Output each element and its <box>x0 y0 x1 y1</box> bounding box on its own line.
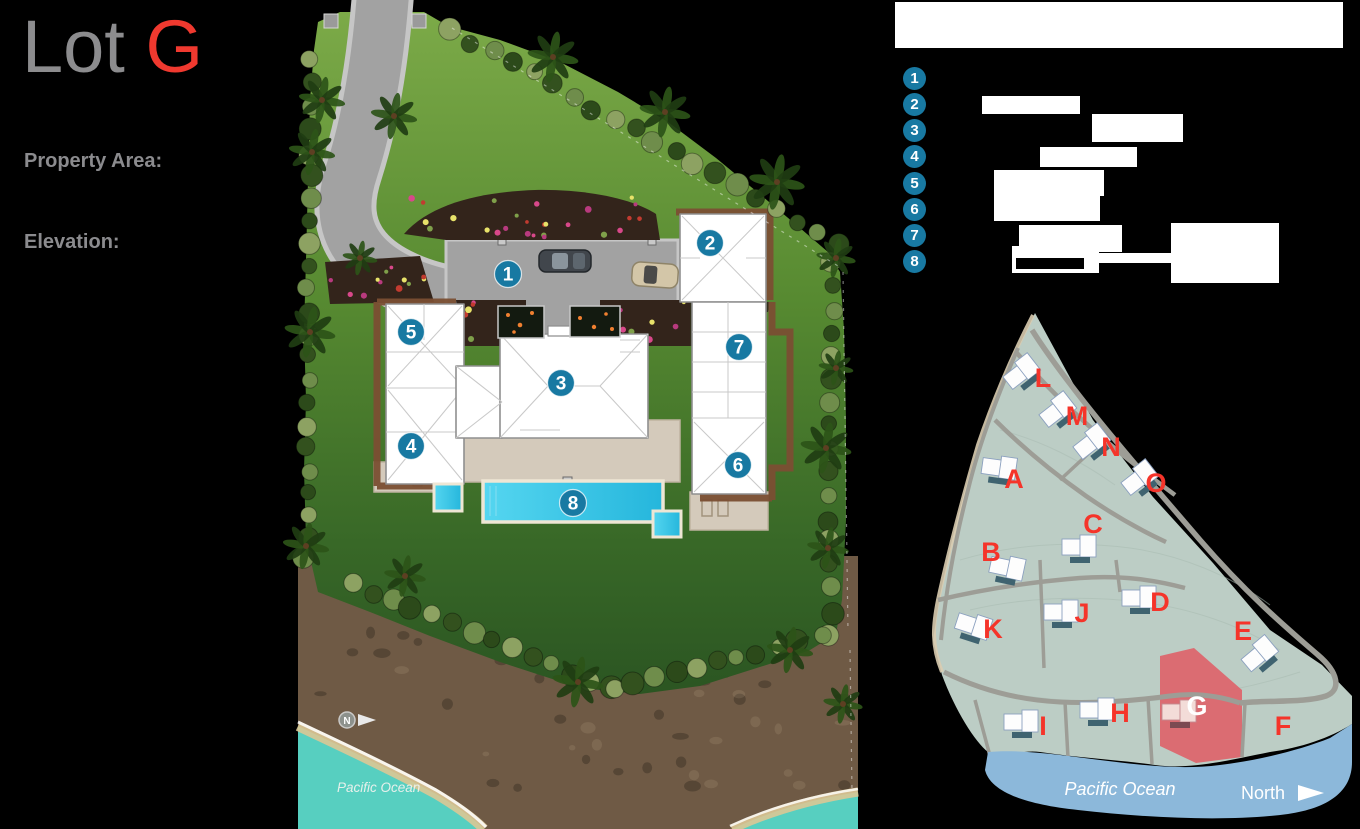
inset-lot-letter-I: I <box>1039 711 1047 741</box>
inset-lot-letter-C: C <box>1083 509 1103 539</box>
page-canvas: N Pacific Ocean 12345678 <box>0 0 1360 829</box>
site-marker-5: 5 <box>398 319 425 346</box>
site-marker-8: 8 <box>560 490 587 517</box>
legend-item-1: 1 <box>903 67 926 90</box>
legend-item-8: 8 <box>903 250 926 273</box>
site-marker-number: 5 <box>406 323 417 344</box>
inset-lot-letter-O: O <box>1145 468 1166 498</box>
inset-lot-letter-M: M <box>1066 401 1089 431</box>
site-marker-number: 2 <box>705 234 716 255</box>
north-n-label: N <box>343 716 350 727</box>
inset-map: LMNOABCJDKEIHGF Pacific Ocean North <box>933 313 1352 818</box>
legend-item-3: 3 <box>903 119 926 142</box>
inset-north-label: North <box>1241 783 1285 803</box>
inset-lot-letter-G: G <box>1186 691 1207 721</box>
legend-label-block-4 <box>1040 147 1137 167</box>
legend-label-block-right <box>1171 223 1279 283</box>
legend-label-block-8-cutout <box>1016 258 1084 269</box>
legend-item-5: 5 <box>903 172 926 195</box>
plan-ocean-label: Pacific Ocean <box>337 780 420 795</box>
legend-item-6: 6 <box>903 198 926 221</box>
legend-title-bar <box>895 2 1343 48</box>
inset-lot-letter-B: B <box>981 537 1001 567</box>
site-marker-number: 1 <box>503 265 514 286</box>
legend-label-block-3 <box>1092 114 1183 142</box>
site-marker-7: 7 <box>726 334 753 361</box>
legend-item-7: 7 <box>903 224 926 247</box>
inset-lot-letter-F: F <box>1275 711 1292 741</box>
site-marker-4: 4 <box>398 433 425 460</box>
site-marker-number: 6 <box>733 456 744 477</box>
inset-lot-letter-H: H <box>1110 698 1130 728</box>
inset-lot-letter-A: A <box>1004 464 1024 494</box>
legend-label-connector <box>1099 253 1171 263</box>
car-light <box>631 261 679 288</box>
spa-left <box>434 484 462 511</box>
gate-pillar-left <box>324 14 338 28</box>
page-title-prefix: Lot <box>22 5 125 88</box>
inset-lot-letter-N: N <box>1101 432 1121 462</box>
legend-item-2: 2 <box>903 93 926 116</box>
inset-lot-letter-E: E <box>1234 616 1252 646</box>
koi-pond-left <box>498 306 544 338</box>
page-title-space <box>125 5 146 88</box>
car-dark <box>539 250 591 272</box>
legend-label-block-5b <box>994 196 1100 221</box>
site-marker-number: 4 <box>406 437 417 458</box>
inset-lot-letter-L: L <box>1035 363 1052 393</box>
page-title-lot-letter: G <box>145 5 203 88</box>
inset-lot-letter-J: J <box>1074 598 1089 628</box>
site-marker-3: 3 <box>548 370 575 397</box>
site-marker-1: 1 <box>495 261 522 288</box>
property-area-label: Property Area: <box>24 150 162 173</box>
site-marker-number: 7 <box>734 338 745 359</box>
koi-pond-right <box>570 306 620 337</box>
site-marker-2: 2 <box>697 230 724 257</box>
site-marker-number: 8 <box>568 494 579 515</box>
inset-lot-letter-K: K <box>983 614 1003 644</box>
page-title: Lot G <box>22 10 203 84</box>
elevation-label: Elevation: <box>24 231 120 254</box>
legend-label-block-2 <box>982 96 1080 114</box>
inset-ocean-label: Pacific Ocean <box>1064 779 1175 799</box>
gate-pillar-right <box>412 14 426 28</box>
legend-item-4: 4 <box>903 145 926 168</box>
legend-label-block-5a <box>994 170 1104 196</box>
spa-right <box>653 511 681 537</box>
site-marker-6: 6 <box>725 452 752 479</box>
site-marker-number: 3 <box>556 374 567 395</box>
inset-lot-letter-D: D <box>1150 587 1170 617</box>
